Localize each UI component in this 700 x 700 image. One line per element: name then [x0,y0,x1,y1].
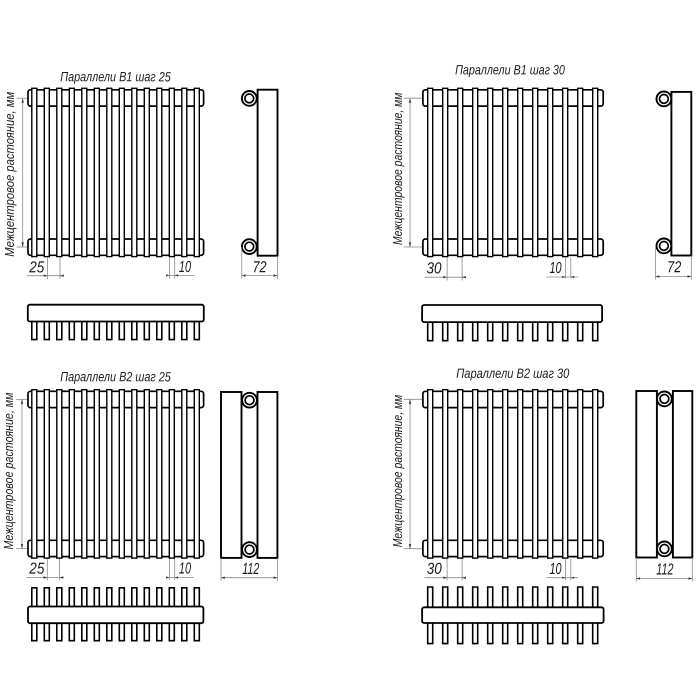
svg-text:Межцентровое растояние, мм: Межцентровое растояние, мм [390,92,405,245]
svg-text:Параллели В2 шаг 25: Параллели В2 шаг 25 [60,369,171,384]
svg-text:112: 112 [242,561,259,578]
svg-text:10: 10 [549,260,561,277]
svg-text:25: 25 [28,259,44,276]
svg-text:Межцентровое растояние, мм: Межцентровое растояние, мм [1,392,16,549]
svg-text:10: 10 [549,561,561,578]
svg-text:Параллели В2 шаг 30: Параллели В2 шаг 30 [456,366,570,381]
svg-text:30: 30 [426,260,441,277]
svg-text:Параллели В1 шаг 25: Параллели В1 шаг 25 [60,69,171,84]
svg-text:Параллели В1 шаг 30: Параллели В1 шаг 30 [455,62,565,77]
svg-text:Межцентровое растояние, мм: Межцентровое растояние, мм [390,395,405,548]
svg-text:30: 30 [427,561,442,578]
svg-text:10: 10 [179,259,191,276]
svg-text:72: 72 [667,259,681,276]
svg-text:Межцентровое растояние, мм: Межцентровое растояние, мм [2,92,17,257]
svg-text:72: 72 [252,259,266,276]
svg-text:25: 25 [28,561,44,578]
svg-text:112: 112 [656,562,673,579]
svg-text:10: 10 [179,561,191,578]
